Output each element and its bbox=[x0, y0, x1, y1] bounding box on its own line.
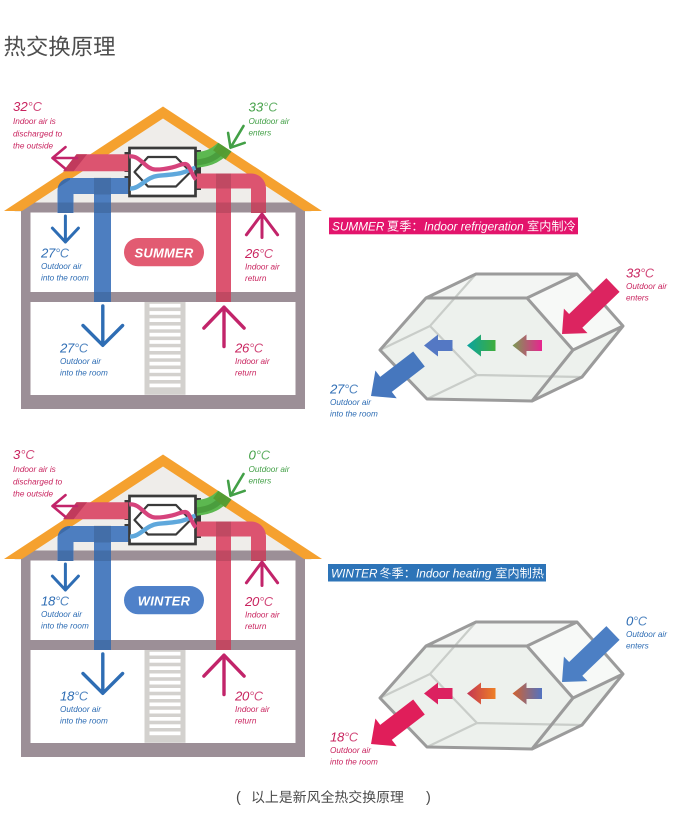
svg-text:Outdoor air: Outdoor air bbox=[60, 357, 101, 366]
svg-text:Outdoor air: Outdoor air bbox=[330, 398, 371, 407]
svg-text:18°C: 18°C bbox=[60, 689, 89, 704]
svg-text:Outdoor air: Outdoor air bbox=[626, 282, 667, 291]
svg-text:Indoor air: Indoor air bbox=[235, 357, 270, 366]
svg-text:26°C: 26°C bbox=[234, 341, 264, 356]
svg-text:discharged to: discharged to bbox=[13, 130, 63, 139]
svg-text:3°C: 3°C bbox=[13, 447, 35, 462]
svg-text:discharged to: discharged to bbox=[13, 478, 63, 487]
svg-text:enters: enters bbox=[626, 641, 649, 650]
svg-text:27°C: 27°C bbox=[40, 246, 70, 261]
svg-text:enters: enters bbox=[626, 293, 649, 302]
svg-text:Outdoor air: Outdoor air bbox=[249, 117, 290, 126]
svg-text:Indoor air: Indoor air bbox=[235, 705, 270, 714]
svg-text:Indoor heating: Indoor heating bbox=[416, 567, 492, 581]
svg-text:26°C: 26°C bbox=[244, 246, 274, 261]
svg-text:WINTER: WINTER bbox=[138, 594, 191, 609]
svg-text:Outdoor air: Outdoor air bbox=[249, 465, 290, 474]
svg-text:return: return bbox=[245, 622, 267, 631]
svg-text:into the room: into the room bbox=[330, 757, 378, 766]
svg-text:return: return bbox=[245, 274, 267, 283]
svg-text:enters: enters bbox=[249, 477, 272, 486]
svg-text:27°C: 27°C bbox=[329, 382, 359, 397]
svg-text:32°C: 32°C bbox=[13, 99, 43, 114]
svg-text:33°C: 33°C bbox=[249, 100, 279, 115]
svg-text:Indoor air is: Indoor air is bbox=[13, 465, 56, 474]
svg-text:Outdoor air: Outdoor air bbox=[41, 610, 82, 619]
svg-text:WINTER: WINTER bbox=[331, 567, 378, 581]
svg-text:the outside: the outside bbox=[13, 490, 54, 499]
svg-text:33°C: 33°C bbox=[626, 266, 655, 281]
svg-text:27°C: 27°C bbox=[59, 341, 89, 356]
svg-text:Outdoor air: Outdoor air bbox=[41, 262, 82, 271]
svg-text:into the room: into the room bbox=[60, 716, 108, 725]
svg-text:Indoor air: Indoor air bbox=[245, 263, 280, 272]
svg-text:18°C: 18°C bbox=[330, 730, 359, 745]
svg-text:20°C: 20°C bbox=[234, 689, 264, 704]
svg-text:Outdoor air: Outdoor air bbox=[330, 746, 371, 755]
svg-text:Indoor refrigeration: Indoor refrigeration bbox=[424, 220, 524, 234]
svg-text:Indoor air is: Indoor air is bbox=[13, 117, 56, 126]
svg-text:into the room: into the room bbox=[330, 409, 378, 418]
svg-text:): ) bbox=[426, 790, 431, 806]
svg-text:Outdoor air: Outdoor air bbox=[60, 705, 101, 714]
svg-text:SUMMER: SUMMER bbox=[332, 220, 385, 234]
svg-text:20°C: 20°C bbox=[244, 594, 274, 609]
svg-text:the outside: the outside bbox=[13, 142, 54, 151]
svg-text:Outdoor air: Outdoor air bbox=[626, 630, 667, 639]
svg-text:enters: enters bbox=[249, 129, 272, 138]
svg-text:return: return bbox=[235, 716, 257, 725]
svg-text:0°C: 0°C bbox=[626, 614, 648, 629]
svg-text:(: ( bbox=[236, 790, 241, 806]
svg-text:0°C: 0°C bbox=[249, 448, 271, 463]
svg-text:into the room: into the room bbox=[41, 621, 89, 630]
svg-text:return: return bbox=[235, 368, 257, 377]
svg-text:18°C: 18°C bbox=[41, 594, 70, 609]
svg-text:into the room: into the room bbox=[41, 273, 89, 282]
svg-text:SUMMER: SUMMER bbox=[135, 246, 194, 261]
svg-text:into the room: into the room bbox=[60, 368, 108, 377]
svg-text:Indoor air: Indoor air bbox=[245, 611, 280, 620]
